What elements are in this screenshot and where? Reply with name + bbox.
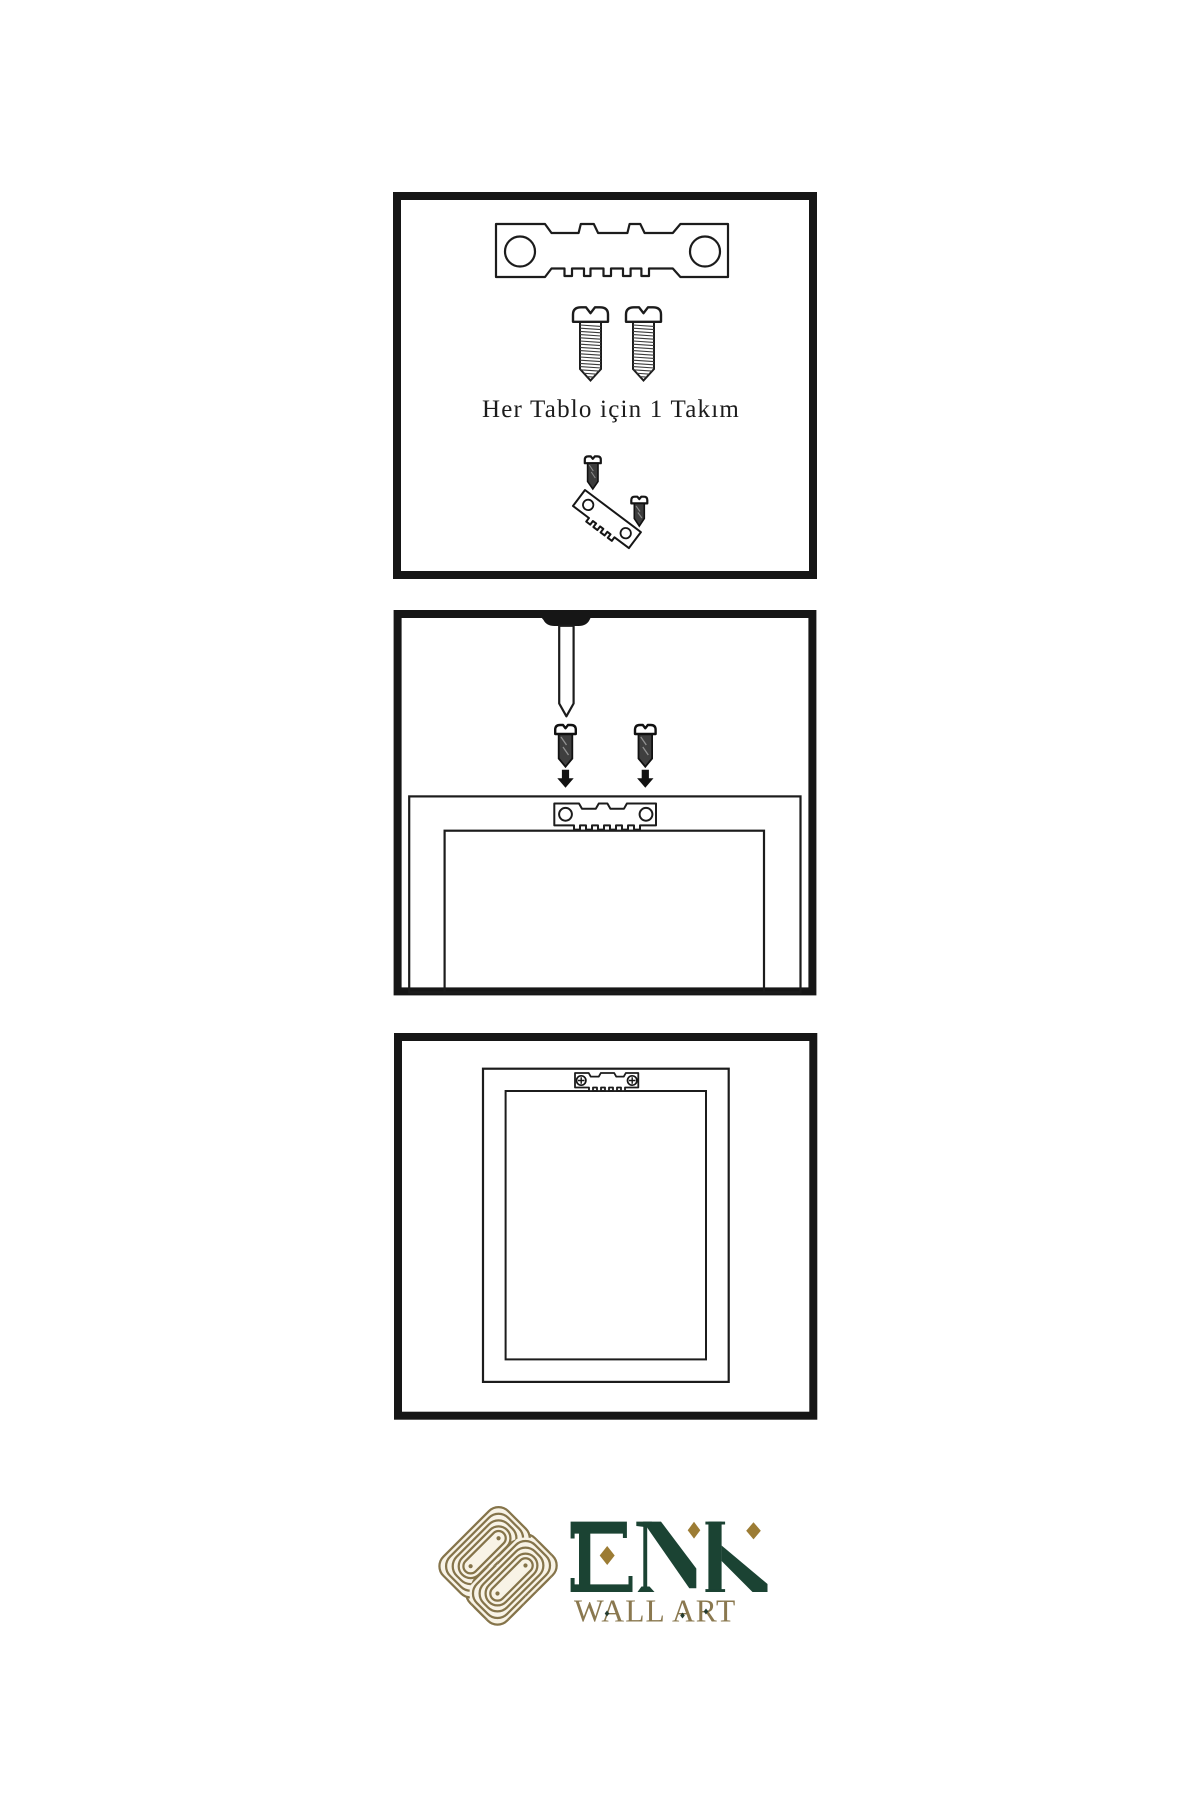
svg-text:WALL ART: WALL ART: [574, 1594, 736, 1629]
svg-text:Her Tablo için 1 Takım: Her Tablo için 1 Takım: [482, 396, 740, 423]
